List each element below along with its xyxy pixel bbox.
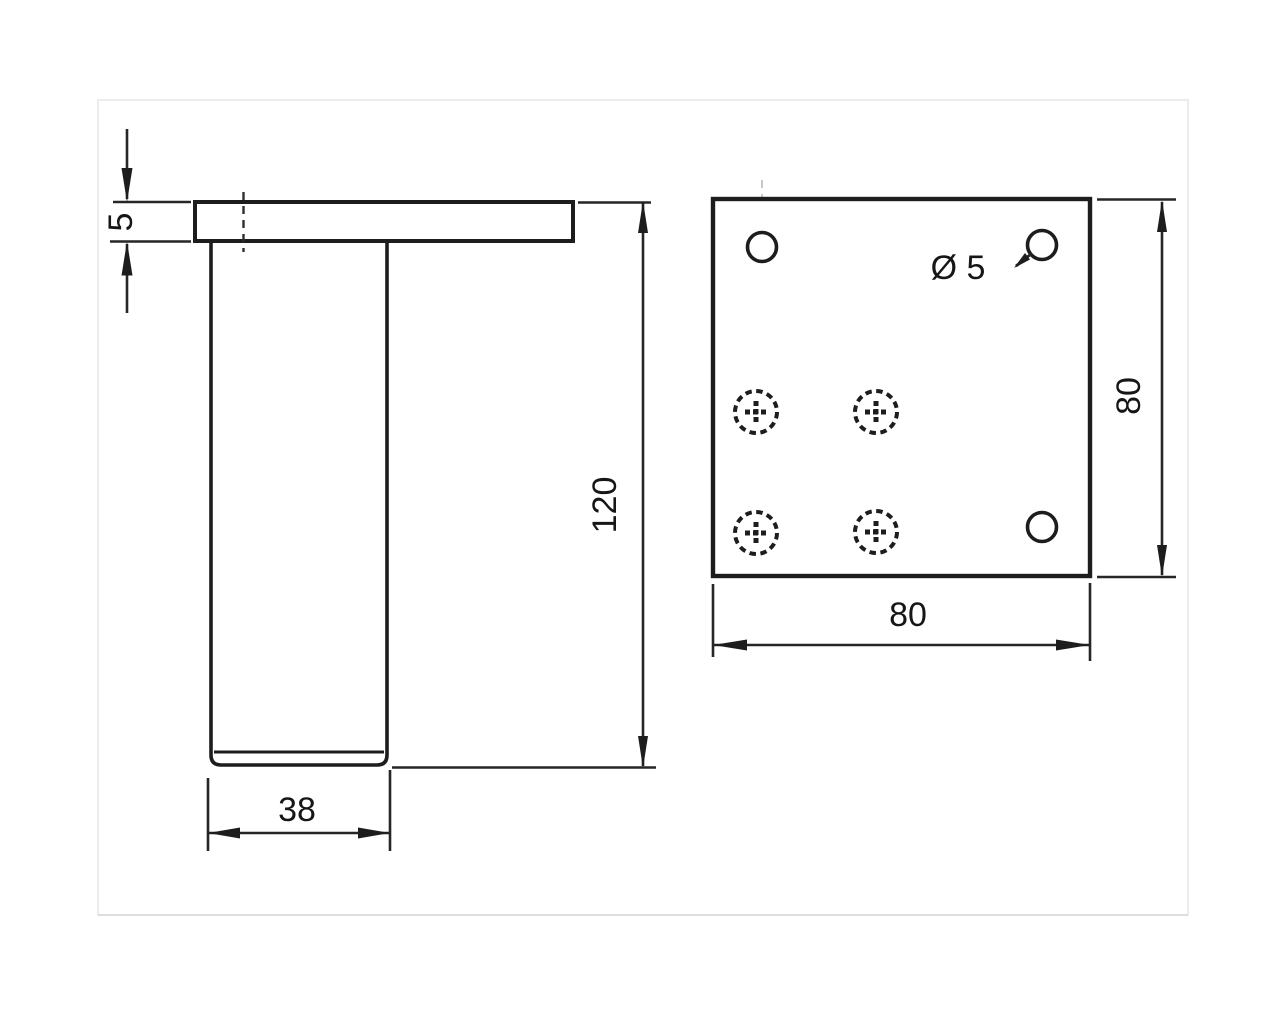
technical-drawing-canvas: 5 120 38 (0, 0, 1280, 1024)
arrowhead-right (358, 828, 390, 839)
dimension-label-leg-diameter: 38 (278, 791, 316, 829)
dimension-label-leg-height: 120 (586, 477, 624, 534)
dim-plate-thickness: 5 (102, 129, 191, 313)
dimension-label-hole-diameter: Ø 5 (931, 249, 986, 287)
arrowhead-down (1157, 545, 1167, 577)
arrowhead-up (638, 201, 648, 233)
dim-leg-height: 120 (392, 201, 656, 768)
dimension-label-plate-width: 80 (889, 596, 927, 634)
arrowhead-left (208, 828, 240, 839)
arrowhead-left (713, 640, 747, 651)
drawing-page: 5 120 38 (0, 0, 1280, 1024)
top-view: Ø 5 80 80 (713, 180, 1176, 661)
arrowhead-down (638, 736, 648, 768)
dim-plate-height: 80 (1097, 200, 1176, 578)
dimension-label-plate-height: 80 (1110, 377, 1148, 415)
leg-outline (211, 241, 387, 765)
arrowhead-down (122, 168, 133, 202)
arrowhead-up (1157, 200, 1167, 232)
plate-side-outline (195, 202, 573, 241)
side-view: 5 120 38 (102, 129, 656, 851)
dim-leg-diameter: 38 (208, 770, 390, 851)
dimension-label-plate-thickness: 5 (102, 213, 140, 232)
arrowhead-right (1056, 640, 1090, 651)
arrowhead-up (122, 242, 133, 276)
dim-plate-width: 80 (713, 583, 1090, 661)
